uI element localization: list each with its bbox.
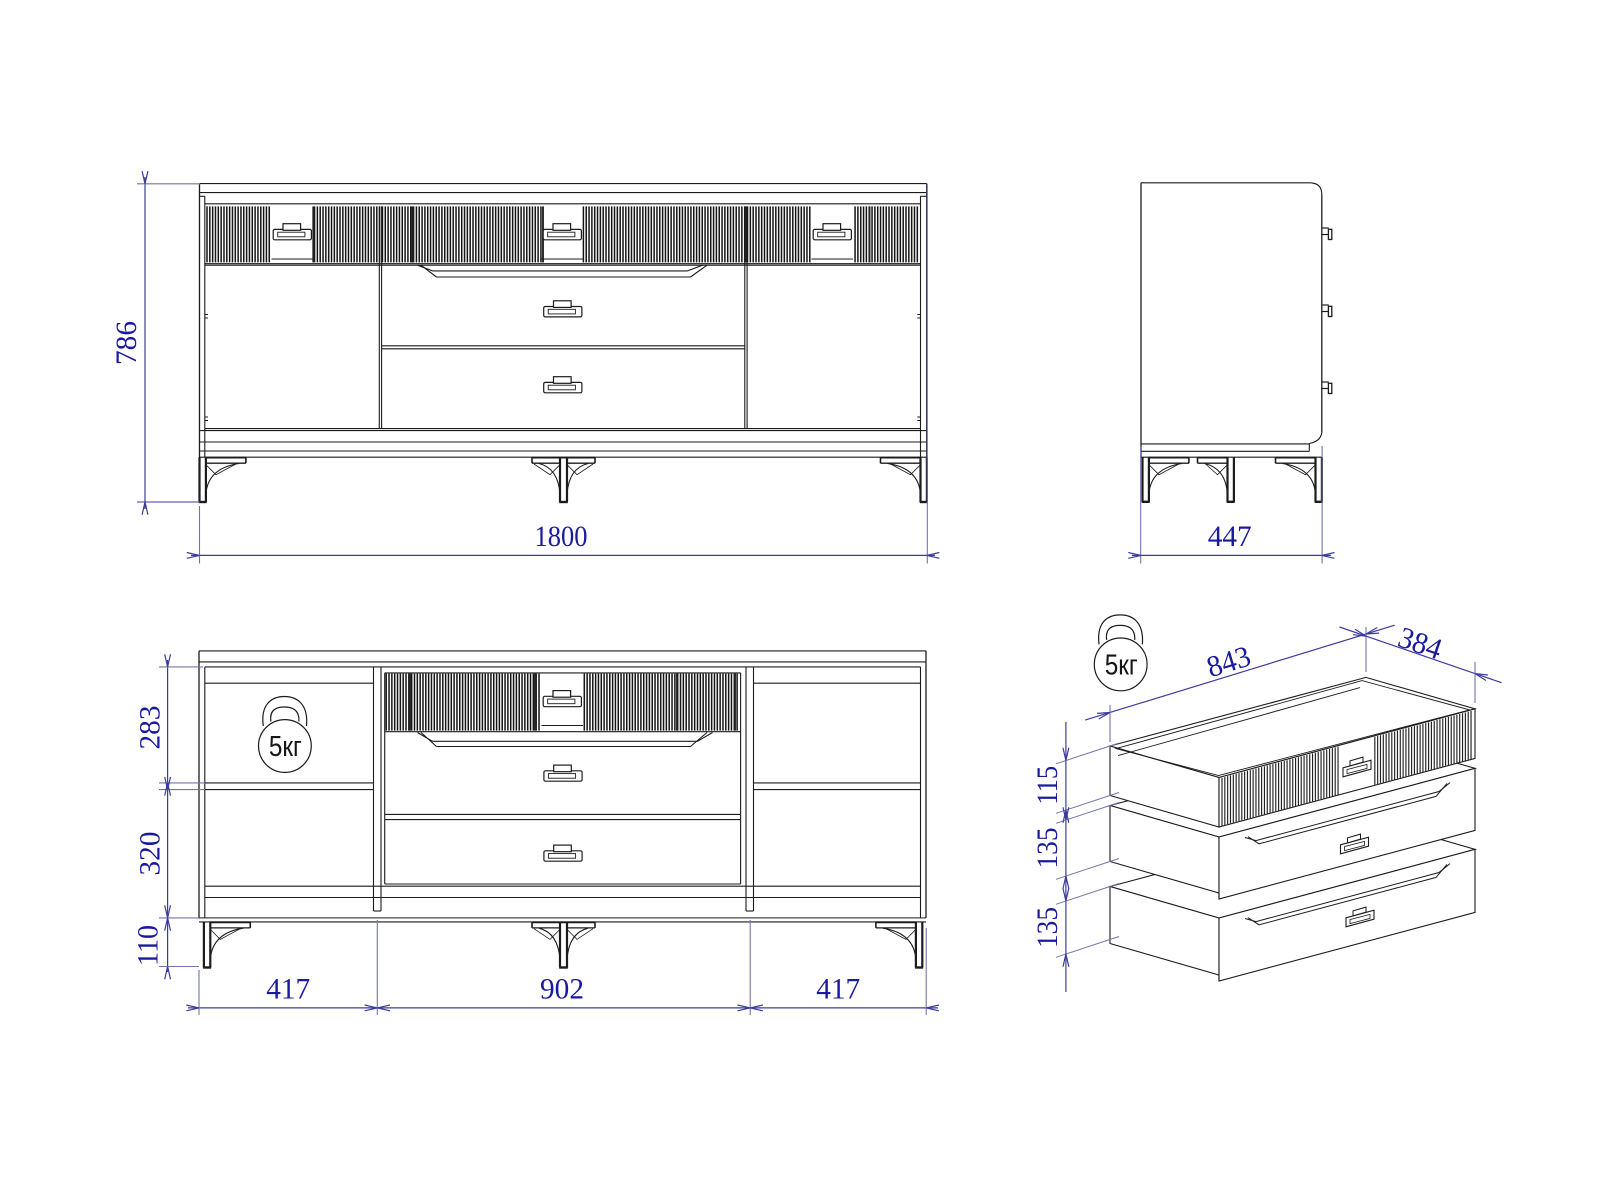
svg-text:902: 902 [540, 973, 584, 1006]
svg-text:110: 110 [132, 925, 165, 966]
svg-text:135: 135 [1031, 907, 1064, 948]
svg-text:5кг: 5кг [269, 731, 302, 763]
svg-text:417: 417 [266, 973, 310, 1006]
svg-text:786: 786 [110, 321, 143, 365]
svg-text:447: 447 [1208, 520, 1252, 553]
svg-text:5кг: 5кг [1105, 649, 1138, 681]
svg-text:283: 283 [133, 706, 166, 750]
svg-text:115: 115 [1031, 766, 1064, 805]
svg-text:320: 320 [133, 832, 166, 876]
svg-text:1800: 1800 [535, 520, 588, 553]
svg-text:417: 417 [816, 973, 860, 1006]
svg-text:135: 135 [1031, 828, 1064, 869]
